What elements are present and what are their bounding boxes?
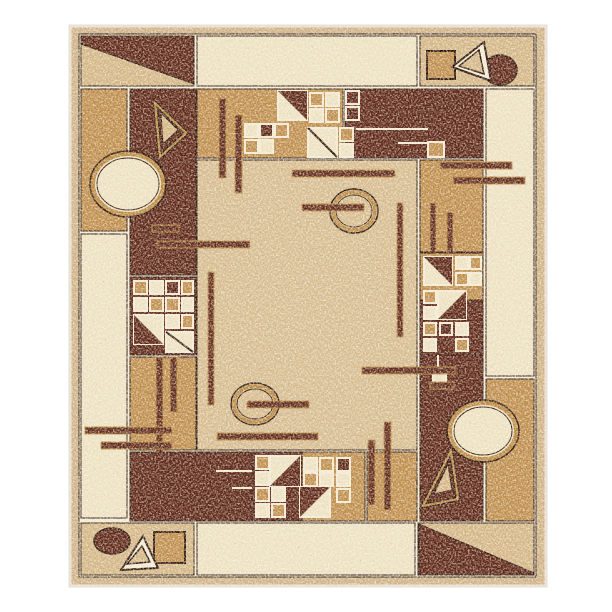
speckle-light-texture [70, 26, 546, 586]
rug-photo [0, 0, 612, 612]
rug-image [0, 0, 612, 612]
